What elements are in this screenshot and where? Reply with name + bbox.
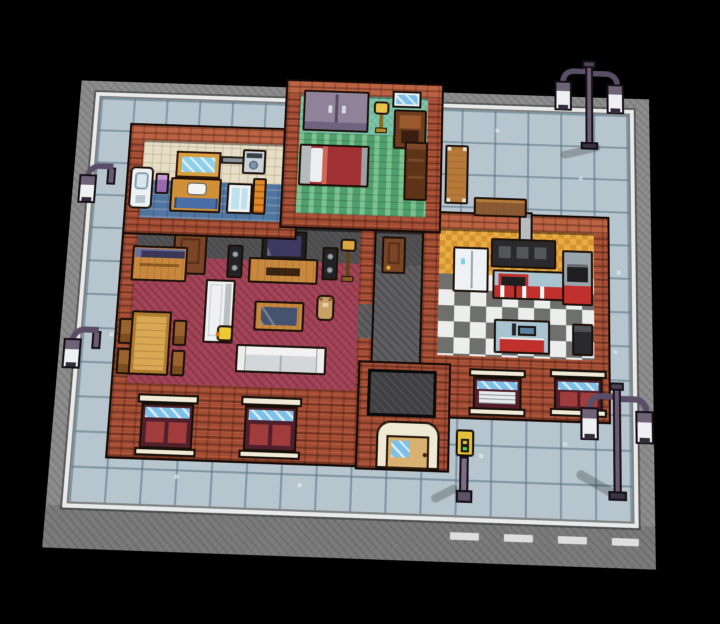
window-shutter — [249, 424, 268, 445]
hanging-towel — [251, 178, 267, 215]
street-lamp-w1 — [73, 155, 120, 206]
lamp-stem — [379, 114, 383, 127]
vanity-doors — [174, 197, 218, 209]
window-glass — [477, 381, 518, 391]
fridge — [453, 246, 489, 292]
lantern-tip — [81, 197, 91, 201]
lantern-cap — [608, 86, 622, 95]
coffee-table — [253, 301, 304, 333]
window-sill — [238, 450, 300, 461]
lantern — [555, 81, 572, 111]
fridge-dispenser — [461, 258, 465, 264]
street-lamp-ne — [543, 59, 650, 159]
bathroom-block — [124, 125, 299, 238]
wardrobe-handle — [328, 105, 332, 113]
lane-dash — [558, 536, 587, 545]
dining-chair — [170, 350, 186, 377]
duck-beak — [216, 332, 220, 336]
shower-door-seam — [239, 187, 242, 210]
bedroom-window — [392, 91, 421, 109]
window-shutter — [272, 425, 291, 446]
lantern-cap — [556, 82, 569, 91]
sofa — [235, 344, 327, 375]
bedroom-block — [281, 81, 442, 231]
lamp-base — [341, 276, 353, 282]
hall-floor — [372, 264, 423, 364]
front-window — [238, 396, 302, 460]
lane-dash — [504, 534, 533, 543]
washing-machine — [242, 149, 267, 174]
stove-counter — [492, 269, 564, 301]
lantern-tip — [611, 108, 621, 113]
tv-screen — [267, 235, 302, 257]
window-body — [473, 376, 522, 410]
street-lamp-w2 — [57, 318, 105, 372]
bookshelf — [403, 142, 428, 202]
lantern-tip — [66, 362, 76, 366]
hall-opening — [357, 304, 374, 338]
meter-light-amber — [463, 441, 467, 444]
bed-footboard — [361, 148, 368, 186]
armchair-back — [399, 115, 421, 129]
bench — [444, 145, 469, 205]
lamp-stem — [345, 252, 350, 277]
oven-door — [567, 264, 588, 282]
lamp-pole — [585, 63, 593, 149]
toilet-base — [135, 195, 145, 203]
fridge-seam — [470, 251, 473, 288]
lamp-base — [581, 142, 599, 150]
teddy-bear — [316, 295, 335, 321]
bed-fold — [321, 146, 327, 184]
sink-bowl — [187, 182, 207, 195]
toilet-lid — [134, 172, 149, 190]
sink-basin — [518, 326, 536, 337]
bed — [298, 144, 370, 188]
wardrobe-handle — [342, 106, 346, 114]
game-viewport[interactable] — [0, 0, 720, 624]
sink-vanity — [169, 177, 222, 213]
lantern-tip — [558, 105, 568, 110]
dining-chair — [172, 320, 188, 347]
bench-foot — [447, 147, 451, 151]
lantern — [635, 411, 654, 445]
entry-facade-block — [357, 362, 449, 470]
tv-stand-slot — [266, 267, 300, 276]
lane-dash — [612, 538, 639, 546]
meter-screen — [461, 439, 469, 453]
oven-unit — [562, 250, 593, 306]
living-room-block — [107, 217, 377, 466]
lantern-cap — [65, 340, 80, 350]
door-panel — [388, 242, 400, 264]
wall-mirror — [175, 151, 221, 179]
bench-foot — [463, 147, 467, 151]
teddy-muzzle — [322, 303, 328, 307]
oven-cabinet — [564, 286, 591, 305]
living-floor-lamp — [337, 239, 358, 285]
window-shutter — [145, 421, 165, 442]
sideboard-top — [135, 248, 185, 258]
toilet — [128, 166, 155, 209]
window-glass — [248, 409, 293, 421]
parking-meter — [453, 429, 477, 505]
window-shutter — [168, 422, 188, 443]
lamp-pole — [613, 385, 622, 493]
washer-panel — [247, 153, 263, 158]
teddy-ears — [320, 298, 332, 301]
rubber-duck — [216, 325, 233, 342]
shower-stall — [226, 183, 253, 214]
wardrobe — [302, 90, 369, 133]
large-dark-window — [367, 369, 437, 418]
sideboard-drawer — [139, 263, 179, 267]
front-window — [468, 368, 525, 417]
dining-table — [128, 310, 173, 376]
scuff-marks — [82, 80, 84, 82]
sofa-arm-left — [237, 346, 246, 371]
door-glass — [391, 440, 410, 457]
bench — [474, 197, 527, 218]
bench-foot — [462, 198, 466, 202]
range-hood — [491, 238, 557, 270]
coffee-table-glass — [260, 307, 297, 326]
hood-vent — [534, 247, 546, 259]
hood-vent — [499, 246, 511, 258]
meter-head — [456, 429, 475, 457]
stove-top — [498, 273, 528, 286]
window-body — [243, 405, 298, 452]
street-lamp-se — [572, 380, 675, 510]
window-glass — [145, 407, 190, 419]
window-blinds — [479, 391, 516, 405]
lantern-cap — [582, 409, 596, 419]
lane-dash — [450, 532, 479, 541]
bedroom-door — [381, 236, 406, 274]
faucet — [512, 323, 516, 335]
sofa-arm-right — [316, 349, 325, 374]
shelf-top — [407, 143, 427, 149]
door-knob — [423, 453, 427, 457]
city-block-map — [42, 80, 656, 569]
sink-counter — [494, 319, 550, 355]
speaker-right — [321, 247, 338, 281]
washer-door — [249, 161, 258, 170]
kitchen-bin — [572, 323, 593, 356]
shelf-line — [408, 176, 424, 179]
sofa-cushion-seam — [279, 355, 282, 371]
lantern — [580, 407, 598, 441]
front-door — [375, 420, 440, 470]
meter-pole — [459, 456, 469, 492]
front-window — [134, 393, 199, 457]
bathroom-bin — [154, 173, 169, 194]
window-body — [139, 403, 195, 450]
lamp-cap — [610, 382, 624, 391]
lamp-base — [375, 127, 387, 133]
hood-vent — [517, 247, 529, 259]
window-sill — [468, 407, 525, 417]
lamp-shade — [340, 239, 356, 252]
mirror-glass — [181, 157, 215, 173]
meter-base — [456, 490, 473, 503]
lamp-shade — [374, 101, 390, 115]
bedroom-floor-lamp — [372, 101, 390, 135]
tv-stand — [248, 257, 319, 285]
shelf-line — [408, 159, 424, 162]
wardrobe-base — [304, 121, 366, 131]
lantern-tip — [640, 438, 650, 444]
lamp-cap — [582, 60, 595, 68]
speaker-left — [226, 245, 244, 279]
cabinet-front — [500, 337, 544, 353]
sideboard — [130, 245, 188, 282]
door-knob — [386, 266, 390, 270]
lantern-cap — [81, 176, 95, 185]
lantern — [606, 84, 624, 114]
door-leaf — [385, 435, 429, 470]
window-sill — [134, 447, 196, 458]
meter-light-green — [463, 447, 467, 450]
lantern — [77, 174, 97, 203]
lantern-cap — [637, 413, 651, 423]
lamp-base — [608, 491, 627, 501]
lantern-tip — [585, 434, 595, 440]
lantern — [61, 338, 82, 369]
bench-foot — [446, 198, 450, 202]
cabinet-front — [494, 285, 562, 299]
